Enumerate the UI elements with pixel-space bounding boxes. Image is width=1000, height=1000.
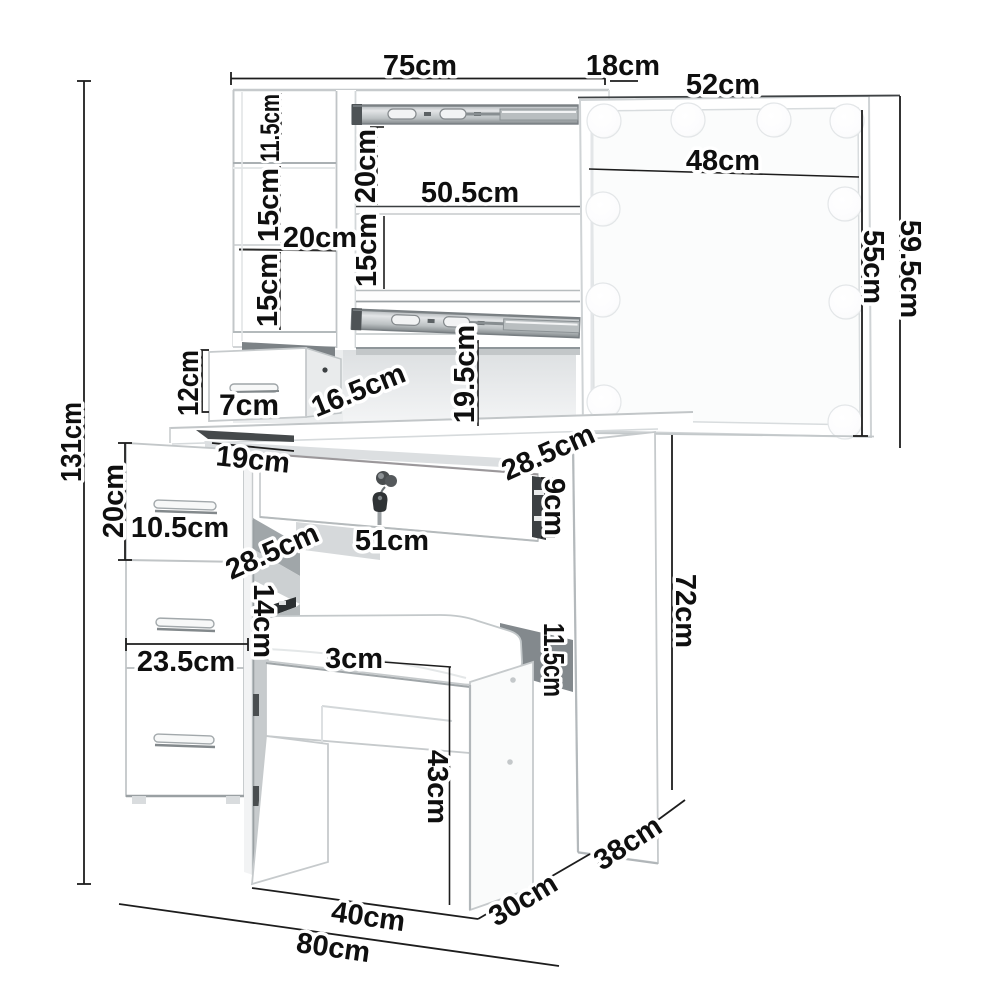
svg-text:18cm: 18cm [586,50,660,82]
svg-text:19.5cm: 19.5cm [449,325,481,423]
svg-text:72cm: 72cm [669,574,701,648]
svg-text:15cm: 15cm [252,253,284,327]
svg-text:10.5cm: 10.5cm [131,512,229,544]
svg-text:59.5cm: 59.5cm [894,220,926,318]
svg-text:20cm: 20cm [283,222,357,254]
svg-text:9cm: 9cm [538,478,570,536]
svg-text:48cm: 48cm [686,145,760,177]
svg-text:55cm: 55cm [857,230,889,304]
svg-text:43cm: 43cm [421,750,453,824]
svg-text:20cm: 20cm [350,129,382,203]
svg-text:7cm: 7cm [219,389,279,422]
svg-text:23.5cm: 23.5cm [137,646,235,678]
svg-text:11.5cm: 11.5cm [537,623,569,697]
svg-text:11.5cm: 11.5cm [255,94,285,162]
svg-text:75cm: 75cm [383,50,457,82]
svg-text:51cm: 51cm [355,525,429,557]
svg-text:12cm: 12cm [173,350,205,416]
svg-text:131cm: 131cm [56,402,88,482]
svg-text:20cm: 20cm [98,464,130,538]
svg-text:52cm: 52cm [686,69,760,101]
svg-text:3cm: 3cm [325,643,383,675]
svg-text:15cm: 15cm [253,168,285,242]
svg-text:15cm: 15cm [351,213,383,287]
svg-text:50.5cm: 50.5cm [421,177,519,209]
svg-text:14cm: 14cm [247,584,279,658]
